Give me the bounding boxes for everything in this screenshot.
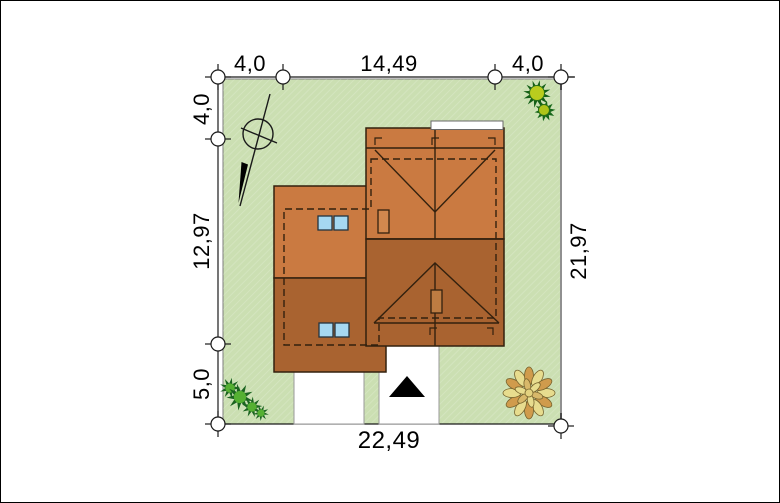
- dim-label-top-setback-right: 4,0: [512, 53, 544, 75]
- dim-label-left-setback-top: 4,0: [191, 93, 213, 125]
- site-plan: 4,0 14,49 4,0 4,0 12,97 5,0 21,97 22,49: [0, 0, 780, 503]
- chimney-icon: [378, 210, 389, 233]
- chimney-icon: [431, 290, 442, 313]
- dim-label-left-height: 12,97: [191, 212, 213, 270]
- garden-path: [294, 372, 364, 424]
- dim-label-right-height: 21,97: [568, 222, 590, 280]
- dim-label-top-width: 14,49: [360, 53, 418, 75]
- dim-label-top-setback-left: 4,0: [234, 53, 266, 75]
- skylight-window-icon: [319, 323, 333, 337]
- dormer-icon: [431, 121, 503, 130]
- dim-label-bottom-width: 22,49: [358, 429, 421, 453]
- skylight-window-icon: [335, 323, 349, 337]
- dim-label-left-setback-bottom: 5,0: [191, 368, 213, 400]
- skylight-window-icon: [334, 216, 348, 230]
- skylight-window-icon: [318, 216, 332, 230]
